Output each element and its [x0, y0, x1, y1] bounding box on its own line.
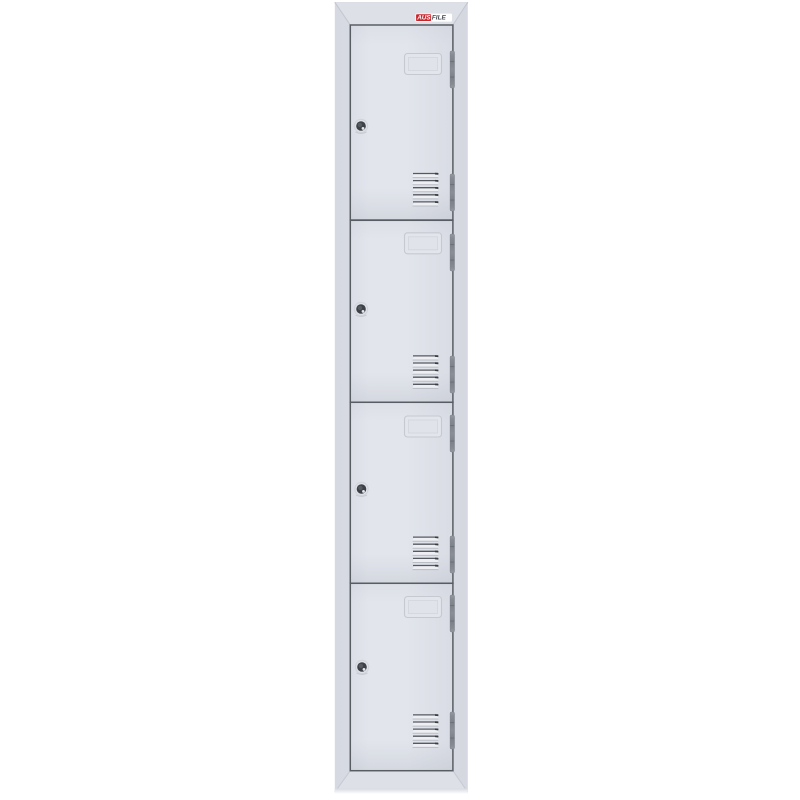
svg-text:AUS: AUS — [416, 15, 431, 22]
svg-text:FILE: FILE — [432, 15, 447, 22]
